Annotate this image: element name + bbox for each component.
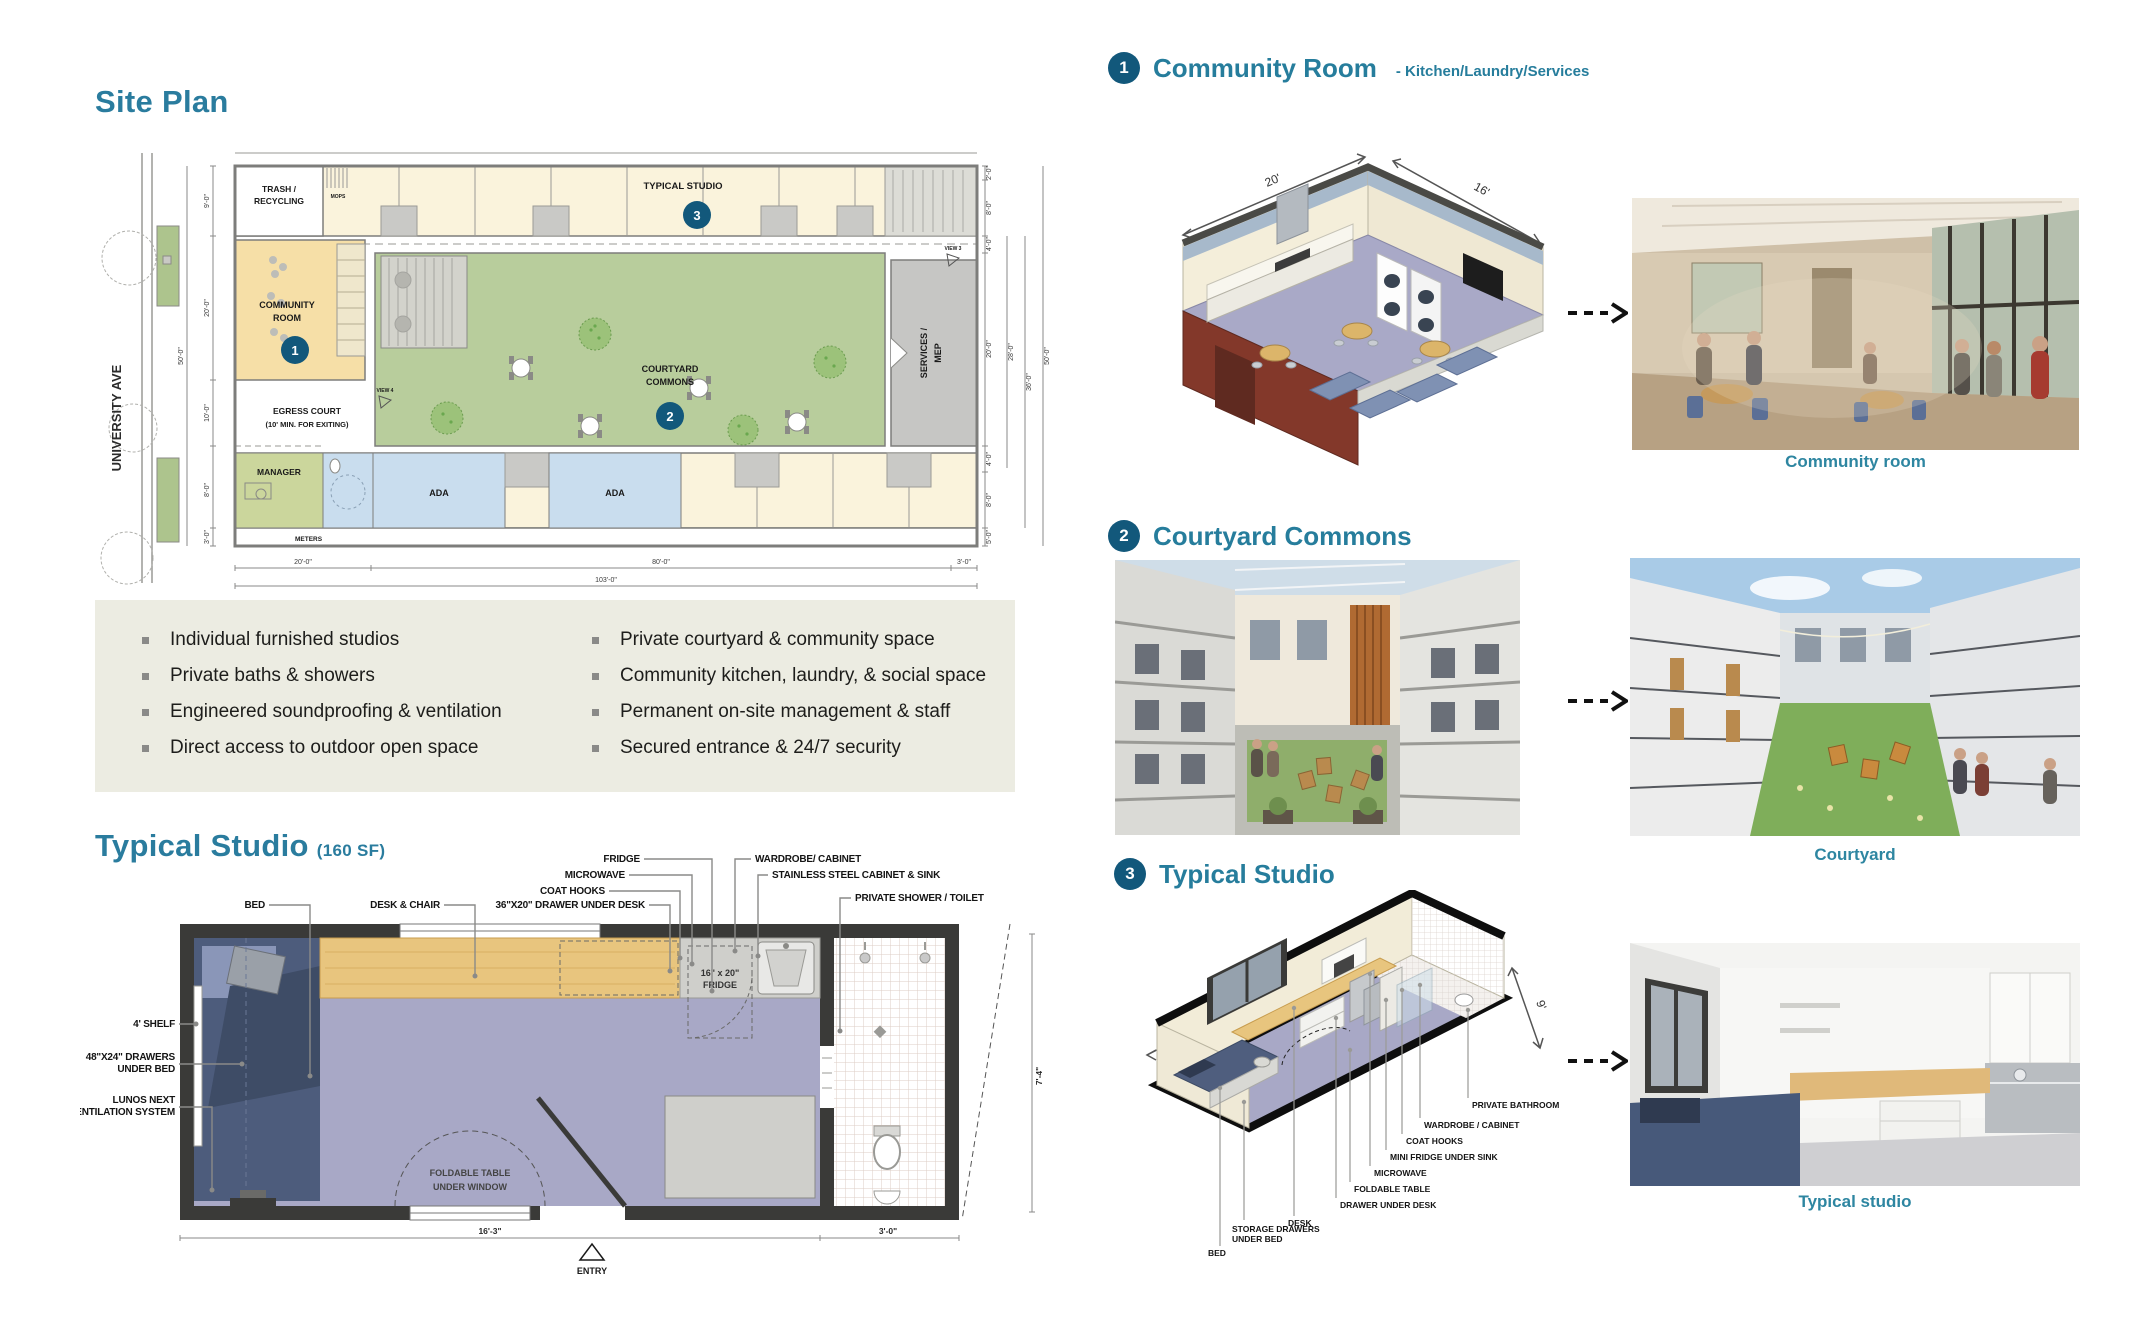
- feature-item: Direct access to outdoor open space: [140, 730, 502, 766]
- feature-list-left: Individual furnished studios Private bat…: [140, 622, 502, 766]
- section-1-title: Community Room: [1153, 53, 1377, 84]
- svg-text:20'-0": 20'-0": [294, 559, 312, 566]
- label-lunos-1: LUNOS NEXT: [113, 1095, 176, 1106]
- axon3-label-bathroom: PRIVATE BATHROOM: [1472, 1100, 1559, 1110]
- axon3-label-drawer: DRAWER UNDER DESK: [1340, 1200, 1437, 1210]
- axon3-label-microwave: MICROWAVE: [1374, 1168, 1427, 1178]
- axon3-label-desk: DESK: [1288, 1218, 1312, 1228]
- plan-badge-1: 1: [291, 343, 298, 358]
- view4-label: VIEW 4: [377, 388, 394, 394]
- svg-text:20'-0": 20'-0": [986, 340, 993, 358]
- svg-text:3'-0": 3'-0": [204, 530, 211, 544]
- egress-label-2: (10' MIN. FOR EXITING): [265, 420, 349, 429]
- svg-text:50'-0": 50'-0": [178, 347, 185, 365]
- photo3-kitchen: [1985, 1063, 2080, 1133]
- studio-storage: [665, 1096, 815, 1198]
- plan-badge-3: 3: [693, 208, 700, 223]
- photo2r-right-building: [1930, 568, 2080, 836]
- svg-text:80'-0": 80'-0": [652, 559, 670, 566]
- community-label-2: ROOM: [273, 313, 301, 323]
- arrow-icon: [1566, 1048, 1628, 1074]
- entry-label: ENTRY: [577, 1266, 607, 1276]
- dim-width: 16'-3": [478, 1226, 501, 1236]
- section-3-badge-number: 3: [1125, 864, 1134, 884]
- photo2l-left-building: [1115, 560, 1235, 835]
- feature-item: Individual furnished studios: [140, 622, 502, 658]
- label-wardrobe: WARDROBE/ CABINET: [755, 854, 861, 865]
- svg-text:8'-0": 8'-0": [204, 483, 211, 497]
- axon1-dim-16: 16': [1472, 179, 1492, 199]
- label-shower: PRIVATE SHOWER / TOILET: [855, 893, 984, 904]
- studio-axon: 20' 8' 9': [1112, 890, 1567, 1280]
- page: Site Plan UNIVERSITY AVE: [0, 0, 2138, 1322]
- label-microwave: MICROWAVE: [565, 870, 626, 881]
- feature-list-right: Private courtyard & community space Comm…: [590, 622, 986, 766]
- axon3-label-foldable: FOLDABLE TABLE: [1354, 1184, 1431, 1194]
- arrow-icon: [1566, 688, 1628, 714]
- arrow-icon: [1566, 300, 1628, 326]
- svg-text:9'-0": 9'-0": [204, 194, 211, 208]
- feature-box: Individual furnished studios Private bat…: [95, 600, 1015, 792]
- fridge-inline-1: 16" x 20": [701, 968, 740, 978]
- dim-depth: 7'-4": [1034, 1067, 1044, 1085]
- manager-room: [235, 453, 323, 528]
- community-label-1: COMMUNITY: [259, 300, 315, 310]
- label-drawer-under-desk: 36"X20" DRAWER UNDER DESK: [495, 900, 645, 911]
- axon3-label-coathooks: COAT HOOKS: [1406, 1136, 1463, 1146]
- services-label-1: SERVICES /: [919, 327, 929, 378]
- mops-label: MOPS: [331, 194, 346, 200]
- community-room-photo: [1632, 198, 2079, 450]
- courtyard-stair: [381, 256, 467, 348]
- label-lunos-2: VENTILATION SYSTEM: [80, 1107, 175, 1118]
- ada-label-2: ADA: [605, 488, 625, 498]
- caption-courtyard: Courtyard: [1630, 845, 2080, 865]
- ada-label-1: ADA: [429, 488, 449, 498]
- label-fridge: FRIDGE: [603, 854, 640, 865]
- svg-text:8'-0": 8'-0": [986, 201, 993, 215]
- egress-label-1: EGRESS COURT: [273, 406, 342, 416]
- section-2-header: 2 Courtyard Commons: [1108, 520, 1412, 552]
- community-closet: [337, 244, 365, 356]
- svg-text:4'-0": 4'-0": [986, 237, 993, 251]
- lot-line: [962, 924, 1010, 1220]
- section-3-badge: 3: [1114, 858, 1146, 890]
- label-drawers-2: UNDER BED: [117, 1064, 175, 1075]
- section-1-badge: 1: [1108, 52, 1140, 84]
- photo2r-left-building: [1630, 578, 1780, 836]
- community-room-axon: 20' 16': [1125, 135, 1565, 490]
- feature-item: Private baths & showers: [140, 658, 502, 694]
- photo3-bed: [1630, 1093, 1800, 1186]
- label-coat-hooks: COAT HOOKS: [540, 886, 606, 897]
- photo3-upper-cabinets: [1990, 973, 2070, 1063]
- photo1-light: [1682, 278, 1982, 418]
- studio-bed: [194, 938, 320, 1201]
- studio-desk: [320, 938, 680, 998]
- svg-text:28'-0": 28'-0": [1008, 343, 1015, 361]
- label-bed: BED: [244, 900, 265, 911]
- axon3-label-storage-2: UNDER BED: [1232, 1234, 1283, 1244]
- site-plan-title: Site Plan: [95, 84, 229, 120]
- section-1-header: 1 Community Room - Kitchen/Laundry/Servi…: [1108, 52, 1589, 84]
- ada-bath-pods: [505, 453, 549, 487]
- courtyard-label-2: COMMONS: [646, 377, 694, 387]
- section-1-subtitle: - Kitchen/Laundry/Services: [1396, 57, 1589, 80]
- svg-text:2'-0": 2'-0": [986, 166, 993, 180]
- feature-item: Community kitchen, laundry, & social spa…: [590, 658, 986, 694]
- street-lines: [142, 153, 152, 583]
- feature-item: Permanent on-site management & staff: [590, 694, 986, 730]
- svg-text:8'-0": 8'-0": [986, 493, 993, 507]
- axon3-label-wardrobe: WARDROBE / CABINET: [1424, 1120, 1520, 1130]
- fridge-inline-2: FRIDGE: [703, 980, 737, 990]
- street-planters: [157, 226, 179, 542]
- meters-label: METERS: [295, 536, 323, 543]
- svg-text:3'-0": 3'-0": [957, 559, 971, 566]
- toilet-glyph: [330, 459, 340, 473]
- section-1-badge-number: 1: [1119, 58, 1128, 78]
- entry-marker: [580, 1244, 604, 1260]
- studio-photo: [1630, 943, 2080, 1186]
- axon3-dim-9: 9': [1533, 998, 1549, 1011]
- photo2r-lawn: [1750, 703, 1960, 836]
- courtyard-rendering: [1115, 560, 1520, 835]
- feature-item: Private courtyard & community space: [590, 622, 986, 658]
- label-desk-chair: DESK & CHAIR: [370, 900, 441, 911]
- trash-label-2: RECYCLING: [254, 196, 304, 206]
- studio-plan-drawing: 16" x 20" FRIDGE FOLDABLE TABLE UNDER WI…: [80, 846, 1080, 1322]
- axon3-label-bed: BED: [1208, 1248, 1226, 1258]
- view3-label: VIEW 3: [945, 246, 962, 252]
- section-2-title: Courtyard Commons: [1153, 521, 1412, 552]
- svg-text:10'-0": 10'-0": [204, 404, 211, 422]
- svg-text:103'-0": 103'-0": [595, 577, 617, 584]
- svg-text:36'-0": 36'-0": [1026, 373, 1033, 391]
- caption-community-room: Community room: [1632, 452, 2079, 472]
- site-plan-drawing: UNIVERSITY AVE: [85, 128, 1060, 598]
- caption-typical-studio: Typical studio: [1630, 1192, 2080, 1212]
- services-label-2: MEP: [933, 343, 943, 363]
- feature-item: Engineered soundproofing & ventilation: [140, 694, 502, 730]
- plan-badge-2: 2: [666, 409, 673, 424]
- section-3-header: 3 Typical Studio: [1114, 858, 1335, 890]
- axon1-dim-20: 20': [1263, 171, 1283, 190]
- label-stainless: STAINLESS STEEL CABINET & SINK: [772, 870, 941, 881]
- section-2-badge-number: 2: [1119, 526, 1128, 546]
- label-drawers-1: 48"X24" DRAWERS: [86, 1052, 176, 1063]
- manager-label: MANAGER: [257, 467, 301, 477]
- foldable-table-label-1: FOLDABLE TABLE: [430, 1168, 511, 1178]
- feature-item: Secured entrance & 24/7 security: [590, 730, 986, 766]
- svg-text:20'-0": 20'-0": [204, 299, 211, 317]
- trash-label-1: TRASH /: [262, 184, 297, 194]
- typical-studio-label: TYPICAL STUDIO: [644, 181, 723, 192]
- axon3-label-minifridge: MINI FRIDGE UNDER SINK: [1390, 1152, 1499, 1162]
- courtyard-label-1: COURTYARD: [642, 364, 699, 374]
- svg-text:50'-0": 50'-0": [1044, 347, 1051, 365]
- photo2l-right-building: [1400, 560, 1520, 835]
- foldable-table-label-2: UNDER WINDOW: [433, 1182, 507, 1192]
- section-2-badge: 2: [1108, 520, 1140, 552]
- svg-text:4'-0": 4'-0": [986, 452, 993, 466]
- label-shelf: 4' SHELF: [133, 1019, 175, 1030]
- section-3-title: Typical Studio: [1159, 859, 1335, 890]
- street-label: UNIVERSITY AVE: [109, 364, 124, 471]
- svg-text:5'-0": 5'-0": [986, 530, 993, 544]
- courtyard-photo: [1630, 558, 2080, 836]
- dim-bath: 3'-0": [879, 1226, 897, 1236]
